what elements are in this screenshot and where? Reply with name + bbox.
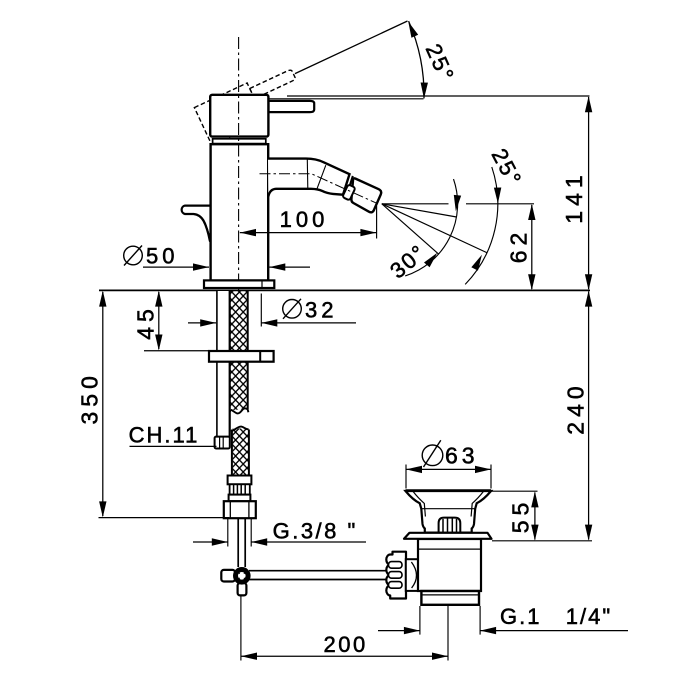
svg-text:G.1 1/4": G.1 1/4" [500, 604, 612, 629]
svg-text:62: 62 [506, 228, 532, 264]
svg-text:CH.11: CH.11 [129, 422, 200, 447]
svg-text:63: 63 [445, 443, 479, 469]
svg-text:100: 100 [280, 207, 329, 232]
svg-text:350: 350 [77, 371, 103, 424]
svg-text:45: 45 [132, 304, 158, 340]
svg-text:50: 50 [146, 244, 178, 269]
svg-text:200: 200 [323, 632, 367, 657]
svg-text:32: 32 [305, 297, 337, 322]
svg-text:G.3/8 ": G.3/8 " [273, 518, 358, 543]
svg-text:141: 141 [561, 170, 587, 223]
svg-text:240: 240 [563, 381, 589, 434]
svg-text:55: 55 [508, 498, 534, 534]
